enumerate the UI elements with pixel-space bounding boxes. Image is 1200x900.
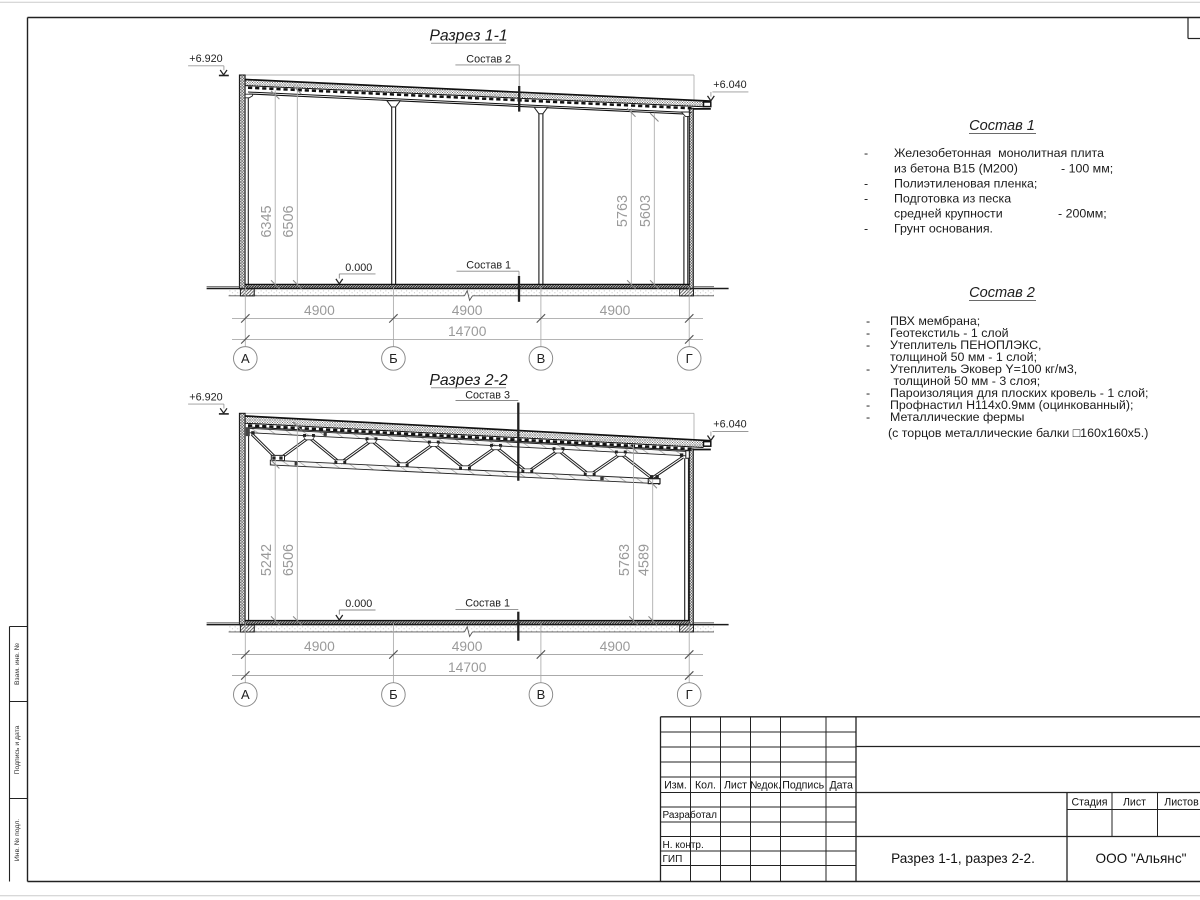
svg-text:средней крупности: средней крупности bbox=[894, 207, 1003, 221]
svg-text:Кол.: Кол. bbox=[695, 780, 716, 792]
svg-text:Дата: Дата bbox=[829, 780, 853, 792]
svg-text:Б: Б bbox=[389, 687, 398, 702]
svg-text:14700: 14700 bbox=[448, 324, 487, 339]
svg-text:-: - bbox=[866, 362, 870, 376]
svg-text:Разрез 2-2: Разрез 2-2 bbox=[429, 372, 507, 389]
svg-text:Подпись: Подпись bbox=[782, 780, 824, 792]
svg-text:Взам. инв. №: Взам. инв. № bbox=[14, 643, 21, 685]
svg-text:0.000: 0.000 bbox=[345, 598, 372, 610]
svg-text:5242: 5242 bbox=[259, 544, 275, 576]
svg-text:В: В bbox=[537, 687, 546, 702]
svg-text:Состав 3: Состав 3 bbox=[465, 389, 510, 401]
svg-text:Подпись и дата: Подпись и дата bbox=[14, 725, 21, 774]
svg-text:+6.040: +6.040 bbox=[713, 79, 746, 91]
svg-text:Разрез 1-1: Разрез 1-1 bbox=[429, 27, 507, 44]
svg-text:Лист: Лист bbox=[724, 780, 747, 792]
svg-text:(с торцов металлические балки: (с торцов металлические балки □160х160х5… bbox=[888, 426, 1148, 440]
svg-text:Разрез 1-1, разрез 2-2.: Разрез 1-1, разрез 2-2. bbox=[891, 851, 1035, 866]
svg-text:5763: 5763 bbox=[617, 544, 633, 576]
svg-text:+6.040: +6.040 bbox=[713, 419, 746, 431]
svg-text:4589: 4589 bbox=[636, 544, 652, 576]
svg-text:Листов: Листов bbox=[1164, 796, 1199, 808]
svg-text:Состав 2: Состав 2 bbox=[969, 285, 1035, 301]
svg-text:Состав 1: Состав 1 bbox=[969, 118, 1035, 134]
svg-text:5763: 5763 bbox=[615, 195, 631, 227]
svg-text:ООО "Альянс": ООО "Альянс" bbox=[1096, 851, 1187, 866]
svg-text:4900: 4900 bbox=[600, 303, 631, 318]
svg-text:из бетона В15 (М200): из бетона В15 (М200) bbox=[894, 162, 1018, 176]
svg-text:Стадия: Стадия bbox=[1071, 796, 1107, 808]
svg-text:-: - bbox=[866, 338, 870, 352]
svg-text:Г: Г bbox=[686, 687, 693, 702]
svg-text:4900: 4900 bbox=[304, 303, 335, 318]
svg-text:Железобетонная монолитная пли: Железобетонная монолитная плита bbox=[894, 146, 1104, 160]
svg-text:6506: 6506 bbox=[281, 205, 297, 237]
svg-text:№док.: №док. bbox=[750, 780, 781, 792]
svg-text:4900: 4900 bbox=[452, 639, 483, 654]
svg-text:4900: 4900 bbox=[600, 639, 631, 654]
svg-text:5603: 5603 bbox=[638, 195, 654, 227]
svg-text:6506: 6506 bbox=[281, 544, 297, 576]
svg-text:Состав 1: Состав 1 bbox=[466, 260, 511, 272]
svg-text:Состав 1: Состав 1 bbox=[465, 597, 510, 609]
svg-text:- 100 мм;: - 100 мм; bbox=[1061, 162, 1113, 176]
svg-text:Инв. № подл.: Инв. № подл. bbox=[14, 819, 21, 861]
svg-text:4900: 4900 bbox=[452, 303, 483, 318]
svg-text:Г: Г bbox=[686, 351, 693, 366]
svg-text:Подготовка из песка: Подготовка из песка bbox=[894, 192, 1011, 206]
svg-text:-: - bbox=[864, 177, 868, 191]
svg-text:Изм.: Изм. bbox=[664, 780, 687, 792]
svg-text:А: А bbox=[241, 687, 250, 702]
svg-text:4900: 4900 bbox=[304, 639, 335, 654]
svg-text:Полиэтиленовая пленка;: Полиэтиленовая пленка; bbox=[894, 177, 1037, 191]
svg-text:6345: 6345 bbox=[259, 205, 275, 237]
svg-text:-: - bbox=[866, 410, 870, 424]
svg-text:ГИП: ГИП bbox=[663, 854, 683, 865]
svg-text:-: - bbox=[864, 192, 868, 206]
svg-text:14700: 14700 bbox=[448, 660, 487, 675]
svg-text:- 200мм;: - 200мм; bbox=[1058, 207, 1107, 221]
svg-text:А: А bbox=[241, 351, 250, 366]
svg-text:Металлические фермы: Металлические фермы bbox=[890, 410, 1024, 424]
svg-text:Разработал: Разработал bbox=[663, 809, 718, 821]
svg-text:-: - bbox=[864, 146, 868, 160]
svg-text:+6.920: +6.920 bbox=[189, 53, 222, 65]
svg-text:+6.920: +6.920 bbox=[189, 391, 222, 403]
svg-text:Н. контр.: Н. контр. bbox=[663, 840, 704, 851]
svg-text:Лист: Лист bbox=[1123, 796, 1146, 808]
svg-text:-: - bbox=[864, 222, 868, 236]
svg-text:Б: Б bbox=[389, 351, 398, 366]
svg-text:В: В bbox=[537, 351, 546, 366]
svg-text:Грунт основания.: Грунт основания. bbox=[894, 222, 993, 236]
svg-text:Состав 2: Состав 2 bbox=[466, 53, 511, 65]
svg-text:0.000: 0.000 bbox=[345, 262, 372, 274]
